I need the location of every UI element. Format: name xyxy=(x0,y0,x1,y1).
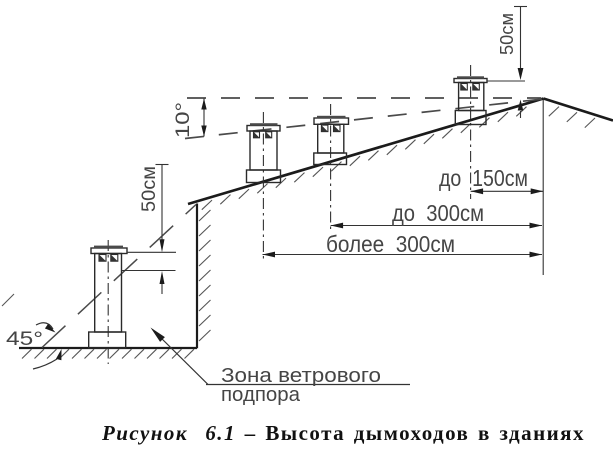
svg-text:до 150см: до 150см xyxy=(439,165,528,191)
svg-text:50см: 50см xyxy=(497,13,517,55)
svg-text:до 300см: до 300см xyxy=(392,200,484,226)
svg-text:более 300см: более 300см xyxy=(326,231,455,257)
svg-text:45°: 45° xyxy=(6,329,43,350)
svg-text:10°: 10° xyxy=(173,102,194,138)
svg-text:50см: 50см xyxy=(139,166,160,212)
svg-text:подпора: подпора xyxy=(221,384,301,406)
